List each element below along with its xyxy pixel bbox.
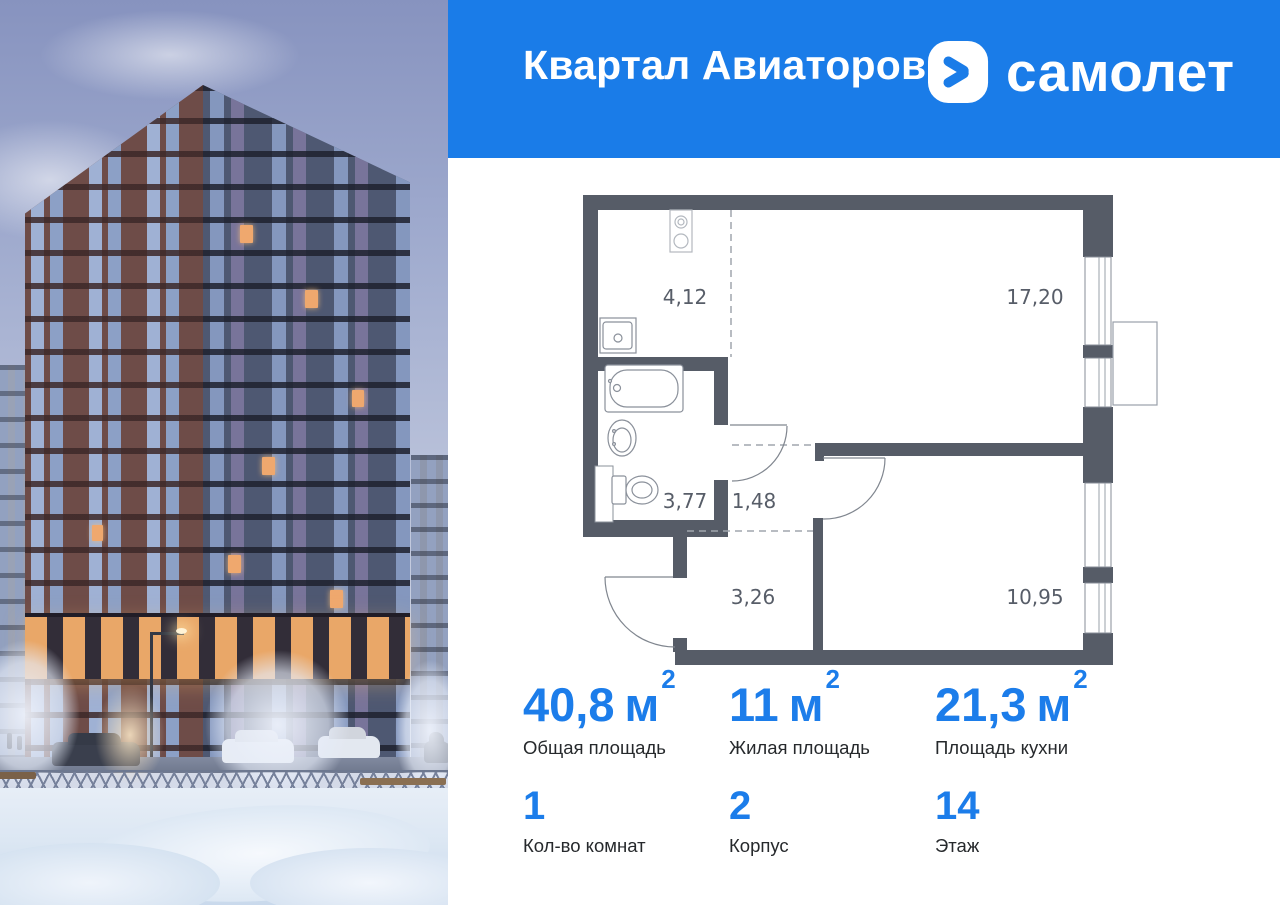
room-area-label: 1,48 [732, 489, 777, 513]
stat-label: Общая площадь [523, 737, 674, 759]
bathtub [605, 365, 683, 412]
stat-value: 40,8м2 [523, 681, 674, 728]
room-area-label: 10,95 [1006, 585, 1063, 609]
toilet [612, 476, 658, 504]
floor-plan: 4,12 17,20 3,77 1,48 3,26 10,95 [565, 185, 1175, 675]
lit-window [330, 590, 343, 608]
stat-total-area: 40,8м2 Общая площадь [523, 681, 674, 759]
stat-label: Кол-во комнат [523, 835, 646, 857]
stat-label: Корпус [729, 835, 789, 857]
snow-ground [0, 788, 448, 905]
stat-label: Жилая площадь [729, 737, 870, 759]
stat-value: 14 [935, 786, 980, 826]
stat-rooms-count: 1 Кол-во комнат [523, 786, 646, 857]
balcony [1113, 322, 1157, 405]
lit-window [352, 390, 364, 407]
samolet-logo-icon [928, 40, 990, 104]
stat-building-number: 2 Корпус [729, 786, 789, 857]
room-area-label: 3,77 [663, 489, 708, 513]
stat-kitchen-area: 21,3м2 Площадь кухни [935, 681, 1086, 759]
stat-value: 2 [729, 786, 789, 826]
room-area-label: 4,12 [663, 285, 708, 309]
stat-value: 21,3м2 [935, 681, 1086, 728]
lit-window [305, 290, 318, 308]
lit-window [228, 555, 241, 573]
stat-value: 1 [523, 786, 646, 826]
brand-header: Квартал Авиаторов самолет [448, 0, 1280, 158]
street-lamp-light [176, 628, 187, 634]
room-area-label: 17,20 [1006, 285, 1063, 309]
lit-window [262, 457, 275, 475]
bench [360, 778, 446, 785]
lit-storefronts [25, 613, 410, 679]
stat-label: Площадь кухни [935, 737, 1086, 759]
wash-sink [608, 420, 636, 456]
stat-floor-number: 14 Этаж [935, 786, 980, 857]
brand-name: самолет [1006, 40, 1235, 104]
kitchen-sink [600, 318, 636, 353]
listing-card: Квартал Авиаторов самолет [0, 0, 1280, 905]
stove [670, 210, 692, 252]
stat-label: Этаж [935, 835, 980, 857]
shaft-niche [595, 466, 613, 522]
stat-value: 11м2 [729, 681, 870, 728]
bench [0, 772, 36, 779]
building-photo [0, 0, 448, 905]
project-title: Квартал Авиаторов [523, 42, 926, 89]
room-area-label: 3,26 [731, 585, 776, 609]
info-panel: Квартал Авиаторов самолет [448, 0, 1280, 905]
lit-window [92, 525, 103, 541]
brand-lockup: самолет [928, 40, 1235, 104]
stat-living-area: 11м2 Жилая площадь [729, 681, 870, 759]
lit-window [240, 225, 253, 243]
